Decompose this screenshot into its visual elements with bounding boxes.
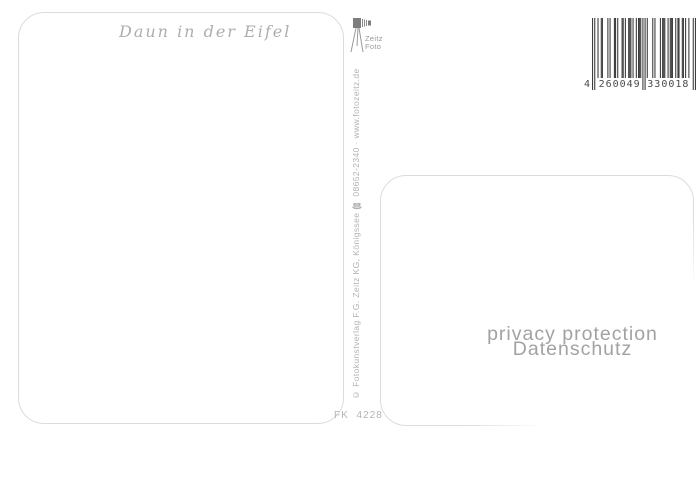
- barcode-group-left: 260049: [599, 79, 641, 90]
- logo-text: Zeitz Foto: [365, 35, 383, 51]
- barcode-group-right: 330018: [647, 79, 689, 90]
- logo-text-line2: Foto: [365, 43, 383, 51]
- order-code: FK 4228: [334, 410, 383, 421]
- publisher-imprint: © Fotokunstverlag F.G. Zeitz KG, Königss…: [351, 92, 363, 400]
- postcard-scan: Daun in der Eifel Zeitz Foto © Fotokunst…: [0, 0, 700, 489]
- postcard-right-card: [380, 175, 694, 426]
- barcode: 4 260049 330018: [584, 18, 696, 100]
- postcard-left-card: Daun in der Eifel: [18, 12, 344, 424]
- barcode-digits: 260049 330018: [592, 79, 696, 90]
- privacy-line2: Datenschutz: [440, 342, 700, 357]
- zeitz-foto-logo: Zeitz Foto: [350, 16, 388, 60]
- privacy-watermark: privacy protection Datenschutz: [440, 327, 700, 357]
- postcard-title: Daun in der Eifel: [119, 22, 291, 41]
- scan-fade-bottom: [461, 418, 700, 428]
- barcode-first-digit: 4: [584, 79, 590, 90]
